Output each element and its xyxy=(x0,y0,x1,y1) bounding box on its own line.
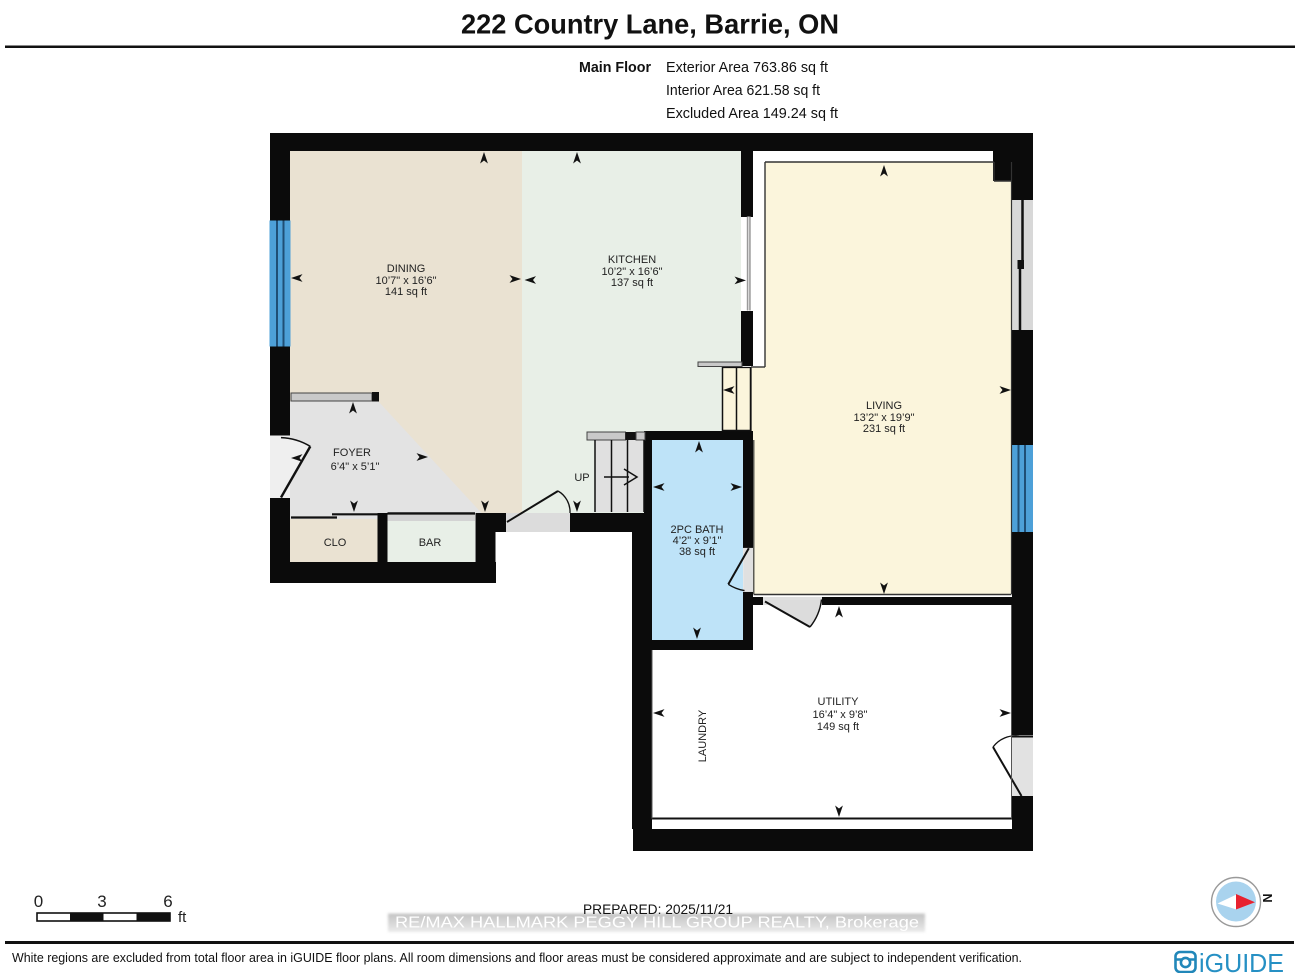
svg-text:Exterior Area 763.86 sq ft: Exterior Area 763.86 sq ft xyxy=(666,59,829,76)
svg-text:0: 0 xyxy=(34,892,43,911)
svg-text:ft: ft xyxy=(178,909,187,926)
svg-text:White regions are excluded fro: White regions are excluded from total fl… xyxy=(12,950,1022,965)
svg-text:UP: UP xyxy=(574,472,589,484)
svg-text:38 sq ft: 38 sq ft xyxy=(679,546,715,558)
svg-text:3: 3 xyxy=(97,892,106,911)
svg-text:6’4" x 5’1": 6’4" x 5’1" xyxy=(331,461,380,473)
svg-text:CLO: CLO xyxy=(324,537,347,549)
svg-text:231 sq ft: 231 sq ft xyxy=(863,423,905,435)
svg-text:141 sq ft: 141 sq ft xyxy=(385,286,427,298)
svg-text:BAR: BAR xyxy=(419,537,442,549)
svg-text:137 sq ft: 137 sq ft xyxy=(611,277,653,289)
svg-text:Interior Area 621.58 sq ft: Interior Area 621.58 sq ft xyxy=(666,82,821,99)
svg-text:iGUIDE: iGUIDE xyxy=(1199,948,1284,973)
svg-text:PREPARED: 2025/11/21: PREPARED: 2025/11/21 xyxy=(583,902,733,917)
svg-text:LIVING: LIVING xyxy=(866,400,902,412)
svg-text:Main Floor: Main Floor xyxy=(579,59,651,76)
svg-text:149 sq ft: 149 sq ft xyxy=(817,721,859,733)
svg-text:LAUNDRY: LAUNDRY xyxy=(697,709,709,762)
svg-text:UTILITY: UTILITY xyxy=(818,696,860,708)
svg-text:DINING: DINING xyxy=(387,263,426,275)
svg-text:N: N xyxy=(1260,893,1274,902)
svg-text:16’4" x 9’8": 16’4" x 9’8" xyxy=(813,709,868,721)
svg-text:Excluded Area 149.24 sq ft: Excluded Area 149.24 sq ft xyxy=(666,105,839,122)
svg-text:6: 6 xyxy=(163,892,172,911)
svg-text:FOYER: FOYER xyxy=(333,447,371,459)
svg-text:RE/MAX HALLMARK PEGGY HILL GRO: RE/MAX HALLMARK PEGGY HILL GROUP REALTY,… xyxy=(395,915,919,932)
svg-text:KITCHEN: KITCHEN xyxy=(608,254,656,266)
svg-text:222 Country Lane, Barrie, ON: 222 Country Lane, Barrie, ON xyxy=(461,9,839,40)
